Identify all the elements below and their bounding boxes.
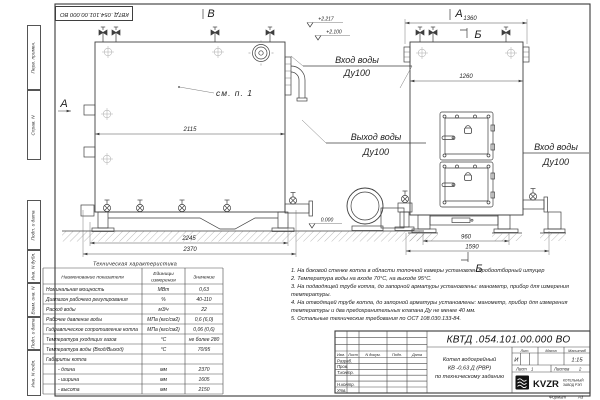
dim-front-top: 2115 bbox=[183, 127, 198, 133]
valve-icon bbox=[416, 27, 424, 42]
tech-row-value: 2370 bbox=[197, 367, 209, 373]
tb-row-razrab: Разраб. bbox=[337, 358, 352, 363]
tech-row-unit: МПа (кгс/см2) bbox=[147, 327, 180, 333]
elev-mid: +2.100 bbox=[326, 30, 342, 36]
lower-door bbox=[440, 162, 495, 207]
front-view bbox=[81, 27, 313, 232]
elev-zero: 0.000 bbox=[321, 218, 334, 224]
t-row-value: не более 280 bbox=[189, 337, 220, 343]
tb-name-line2: КВ -0,63 Д (РВР) bbox=[448, 366, 491, 372]
view-arrow-v: В bbox=[207, 8, 214, 20]
crosshair-mark bbox=[101, 108, 113, 120]
notes-list: 1. На боковой стенке котла в области топ… bbox=[291, 268, 589, 325]
drawing-page: 2115 2245 2370 1360 1260 960 1590 В А А … bbox=[0, 0, 600, 400]
logo-text: KVZR bbox=[533, 379, 559, 390]
tb-name-line3: по техническому заданию bbox=[435, 374, 505, 380]
margin-box-inv-dubl: Инв. N дубл. bbox=[27, 250, 41, 283]
tech-row-value: 40-110 bbox=[196, 297, 211, 303]
tech-row-unit: мм bbox=[160, 387, 167, 393]
tb-sheet-label: Лист bbox=[515, 366, 527, 371]
tb-row-prov: Пров. bbox=[337, 364, 348, 369]
lock-icon bbox=[465, 173, 472, 181]
drawing-canvas: 2115 2245 2370 1360 1260 960 1590 В А А … bbox=[0, 0, 600, 400]
tech-col-unit-2: измерения bbox=[151, 279, 176, 284]
note-item: 4. На отводящей трубе котла, до запорной… bbox=[291, 300, 589, 315]
dim-side-top: 1360 bbox=[463, 16, 477, 22]
side-drain-pipe bbox=[395, 191, 414, 231]
tb-header-data: Дата bbox=[411, 353, 422, 357]
logo-sub2: ЗАВОД РЭП bbox=[563, 383, 582, 387]
tech-row-name: Температура уходящих газов bbox=[46, 337, 117, 343]
drain-valve-icon bbox=[529, 189, 536, 201]
tech-row-name: - ширина bbox=[58, 377, 79, 383]
inlet-top-label: Вход воды bbox=[335, 55, 379, 65]
lock-icon bbox=[465, 126, 472, 134]
tech-row-name: Габариты котла bbox=[46, 357, 87, 363]
tech-row-unit: °С bbox=[161, 337, 167, 343]
tech-row-value: 2150 bbox=[197, 387, 209, 393]
inlet-side-size: Ду100 bbox=[542, 157, 569, 167]
tech-row-value: 22 bbox=[200, 307, 207, 313]
tb-lit-value: И bbox=[514, 358, 519, 364]
section-b-top: Б bbox=[474, 29, 481, 41]
tech-table-title: Техническая характеристика bbox=[93, 262, 177, 268]
crosshair-mark bbox=[505, 47, 517, 59]
tb-name-line1: Котел водогрейный bbox=[443, 356, 496, 363]
tech-row-name: Рабочее давление воды bbox=[46, 317, 102, 323]
tech-row-unit: мм bbox=[160, 377, 167, 383]
draft-fan bbox=[347, 188, 404, 231]
tb-sheet-value: 1 bbox=[531, 366, 533, 371]
tb-header-list: Лист bbox=[347, 353, 358, 357]
valve-icon bbox=[112, 27, 120, 42]
margin-box-vzam-inv: Взам. инв. N bbox=[27, 283, 41, 317]
margin-box-sprav: Справ. N bbox=[27, 90, 41, 160]
tech-row-name: Диапазон рабочего регулирования bbox=[45, 297, 128, 303]
tech-row-value: 0,06 (0,6) bbox=[193, 327, 215, 333]
inlet-top-size: Ду100 bbox=[343, 68, 370, 78]
logo-sub1: КОТЕЛЬНЫЙ bbox=[563, 379, 584, 383]
tech-row-name: - длина bbox=[58, 367, 75, 373]
format-label: Формат bbox=[549, 395, 566, 400]
tb-header-ndokum: N докум. bbox=[365, 353, 380, 357]
tech-row-unit: °С bbox=[161, 347, 167, 353]
tech-col-unit-1: Единицы bbox=[153, 271, 174, 277]
drain-valve-icon bbox=[136, 200, 143, 212]
top-stamp: КВТД .054.101.00.000 ВО bbox=[55, 6, 133, 21]
title-block: КВТД .054.101.00.000 ВО Изм. Лист N доку… bbox=[335, 331, 590, 400]
tb-row-nkontr: Н.контр. bbox=[337, 382, 355, 387]
tech-table: Техническая характеристика Наименование … bbox=[43, 262, 223, 395]
valve-icon bbox=[266, 27, 274, 42]
view-arrow-a-front: А bbox=[59, 98, 67, 110]
tech-row-value: 1605 bbox=[198, 377, 209, 383]
tb-header-izm: Изм. bbox=[337, 353, 345, 357]
valve-icon bbox=[429, 27, 437, 42]
margin-box-inv-podl: Инв. N подл. bbox=[27, 350, 41, 396]
note-item: 5. Остальные технические требования по О… bbox=[291, 316, 589, 324]
title-doc-number: КВТД .054.101.00.000 ВО bbox=[447, 335, 571, 346]
outlet-pipe-elbow bbox=[285, 57, 307, 101]
valve-icon bbox=[211, 27, 219, 42]
crosshair-mark bbox=[102, 46, 114, 58]
tech-row-unit: МВт bbox=[158, 287, 170, 293]
tech-row-name: Номинальная мощность bbox=[46, 287, 105, 293]
tb-scale-label: Масштаб bbox=[568, 349, 587, 353]
elev-high: +2.217 bbox=[318, 17, 334, 23]
drain-pipe bbox=[285, 204, 309, 213]
tech-row-name: Температура воды (Вход/Выход) bbox=[46, 347, 124, 353]
tb-sheets-label: Листов bbox=[553, 366, 570, 371]
ground-hatch bbox=[62, 231, 566, 242]
side-inlet-pipe bbox=[523, 189, 565, 233]
tech-row-value: 0,6 (6,0) bbox=[195, 317, 214, 323]
side-view bbox=[395, 27, 565, 233]
tech-row-name: - высота bbox=[58, 387, 80, 393]
drain-valve-icon bbox=[223, 200, 230, 212]
outlet-size: Ду100 bbox=[362, 147, 389, 157]
note-item: 1. На боковой стенке котла в области топ… bbox=[291, 268, 589, 276]
dim-side-feet: 960 bbox=[461, 235, 472, 241]
crosshair-mark bbox=[416, 47, 428, 59]
tech-row-unit: мм bbox=[160, 367, 167, 373]
drain-valve-icon bbox=[178, 200, 185, 212]
valve-icon bbox=[502, 27, 510, 42]
tech-row-unit: МПа (кгс/см2) bbox=[147, 317, 180, 323]
dim-front-bottom: 2370 bbox=[182, 247, 197, 253]
crosshair-mark bbox=[101, 153, 113, 165]
valve-icon bbox=[99, 27, 107, 42]
dimensions: 2115 2245 2370 1360 1260 960 1590 bbox=[83, 16, 549, 257]
tech-row-unit: м3/ч bbox=[158, 307, 169, 313]
top-stamp-number: КВТД .054.101.00.000 ВО bbox=[60, 11, 129, 17]
tech-col-name: Наименование показателя bbox=[61, 275, 124, 281]
kvzr-logo: KVZR КОТЕЛЬНЫЙ ЗАВОД РЭП bbox=[516, 376, 585, 391]
outlet-label: Выход воды bbox=[351, 132, 402, 142]
tb-mass-label: Масса bbox=[545, 349, 556, 353]
top-flange bbox=[249, 41, 274, 66]
margin-box-podp-data-1: Подп. и дата bbox=[27, 200, 41, 250]
upper-door bbox=[440, 112, 495, 160]
tb-lit-label: Лит. bbox=[520, 349, 530, 353]
view-label-a: А bbox=[454, 8, 462, 20]
tech-row-value: 0,63 bbox=[199, 287, 209, 293]
tech-row-value: 70/95 bbox=[198, 347, 211, 353]
tech-row-unit: % bbox=[161, 297, 166, 303]
format-value: А3 bbox=[577, 395, 584, 400]
tech-row-name: Гидравлическое сопротивление котла bbox=[46, 327, 138, 333]
elevation-marks: +2.217 +2.100 0.000 bbox=[307, 17, 350, 229]
margin-box-podp-data-2: Подп. и дата bbox=[27, 317, 41, 350]
dim-side-body: 1260 bbox=[459, 74, 473, 80]
tb-row-tkontr: Т.контр. bbox=[337, 370, 354, 375]
drain-valve-icon bbox=[103, 200, 110, 212]
crosshair-mark bbox=[212, 46, 224, 58]
tech-col-value: Значение bbox=[193, 275, 215, 281]
tb-row-utv: Утв. bbox=[337, 388, 347, 393]
dim-front-mid: 2245 bbox=[181, 236, 196, 242]
tb-header-podp: Подп. bbox=[392, 353, 402, 357]
tb-scale-value: 1:15 bbox=[571, 358, 583, 364]
drain-valve-icon bbox=[401, 191, 408, 203]
drain-valve-icon bbox=[289, 193, 296, 205]
inlet-side-label: Вход воды bbox=[534, 142, 578, 152]
margin-box-perv-primen: Перв. примен. bbox=[27, 25, 41, 90]
tb-sheets-value: 2 bbox=[578, 366, 582, 371]
see-note-label: см. п. 1 bbox=[216, 88, 253, 98]
dim-side-bottom: 1590 bbox=[465, 245, 479, 251]
note-item: 2. Температура воды на входе 70°С, на вы… bbox=[291, 276, 589, 284]
note-item: 3. На подводящей трубе котла, до запорно… bbox=[291, 284, 589, 299]
tech-row-name: Расход воды bbox=[46, 307, 76, 313]
